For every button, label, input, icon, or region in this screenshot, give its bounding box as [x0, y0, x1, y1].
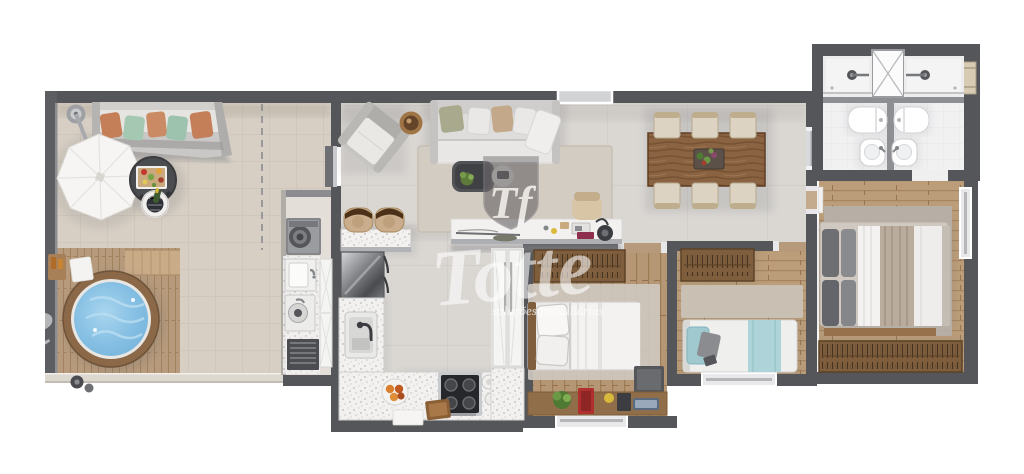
svg-text:soluções imobiliárias: soluções imobiliárias	[492, 303, 604, 318]
svg-text:Tf: Tf	[489, 177, 537, 228]
svg-text:tte: tte	[0, 285, 54, 362]
